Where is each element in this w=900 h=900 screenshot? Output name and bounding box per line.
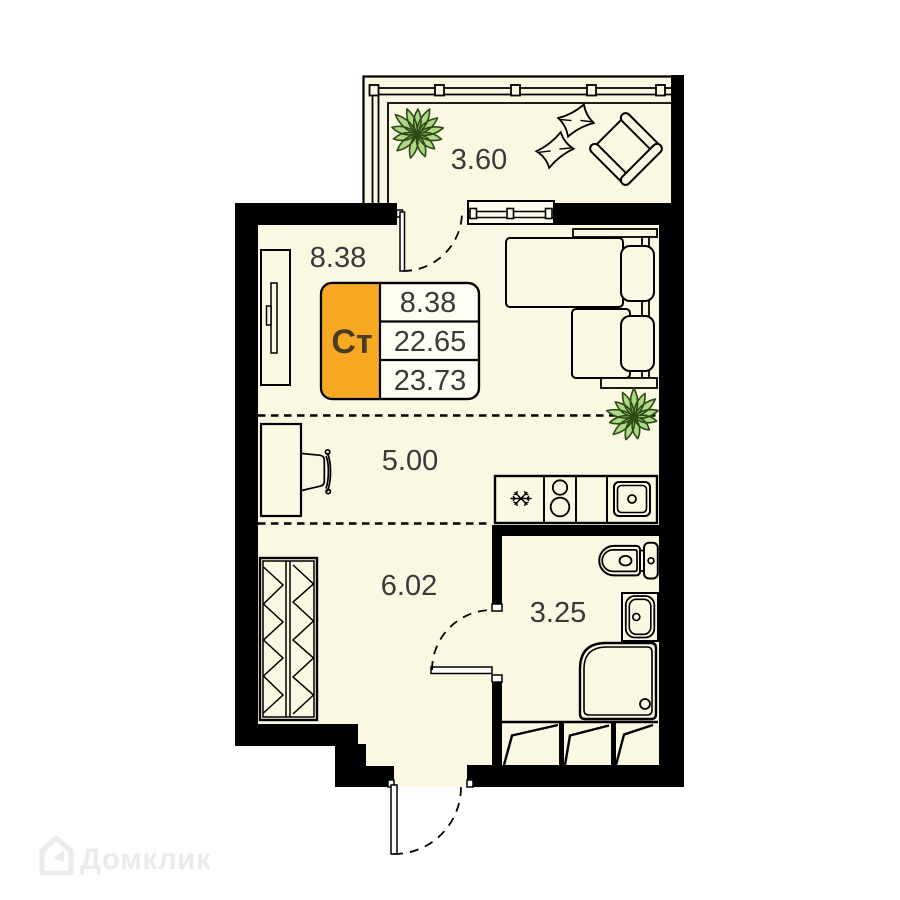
svg-text:6.02: 6.02 <box>381 570 437 602</box>
svg-text:23.73: 23.73 <box>394 365 467 397</box>
svg-text:Ст: Ст <box>331 323 372 361</box>
svg-text:5.00: 5.00 <box>382 445 438 477</box>
svg-text:22.65: 22.65 <box>394 326 467 358</box>
svg-text:8.38: 8.38 <box>310 242 366 274</box>
svg-text:Домклик: Домклик <box>80 843 211 876</box>
svg-text:3.25: 3.25 <box>530 597 586 629</box>
svg-text:3.60: 3.60 <box>451 144 507 176</box>
svg-text:8.38: 8.38 <box>400 287 456 319</box>
